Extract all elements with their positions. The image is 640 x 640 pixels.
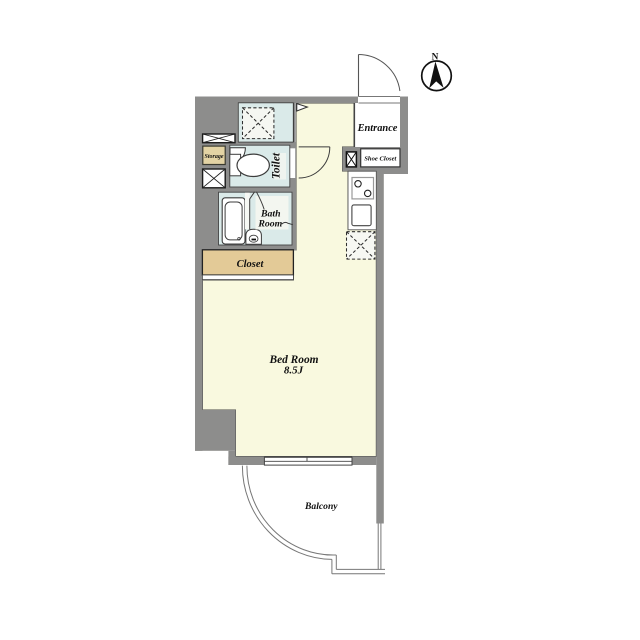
svg-text:8.5J: 8.5J xyxy=(284,365,304,377)
svg-text:Shoe Closet: Shoe Closet xyxy=(364,156,396,163)
svg-text:Entrance: Entrance xyxy=(357,123,398,134)
svg-text:Storage: Storage xyxy=(204,154,223,160)
svg-text:Room: Room xyxy=(257,219,282,230)
svg-text:N: N xyxy=(432,53,439,63)
svg-text:Closet: Closet xyxy=(237,259,265,270)
svg-text:Balcony: Balcony xyxy=(304,501,338,512)
svg-text:Toilet: Toilet xyxy=(271,152,283,179)
